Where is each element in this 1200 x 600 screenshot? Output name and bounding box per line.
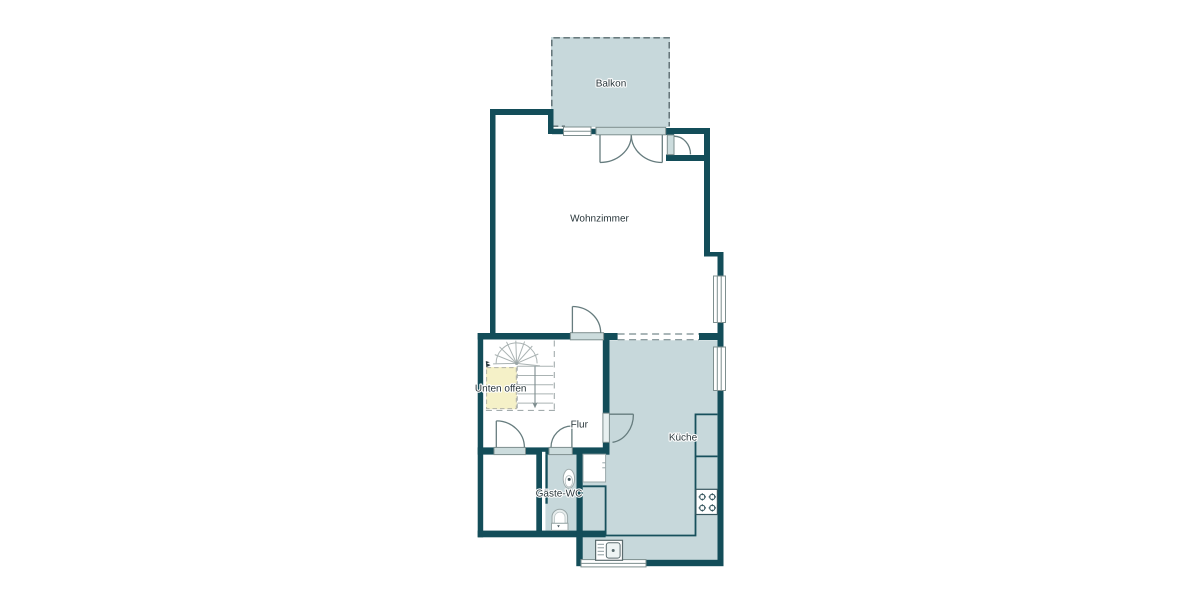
- svg-text:Unten offen: Unten offen: [475, 384, 527, 395]
- svg-text:Wohnzimmer: Wohnzimmer: [570, 213, 629, 224]
- svg-text:Flur: Flur: [571, 420, 589, 431]
- svg-text:Küche: Küche: [669, 432, 698, 443]
- svg-text:Gäste-WC: Gäste-WC: [536, 488, 583, 499]
- svg-text:Balkon: Balkon: [596, 79, 627, 90]
